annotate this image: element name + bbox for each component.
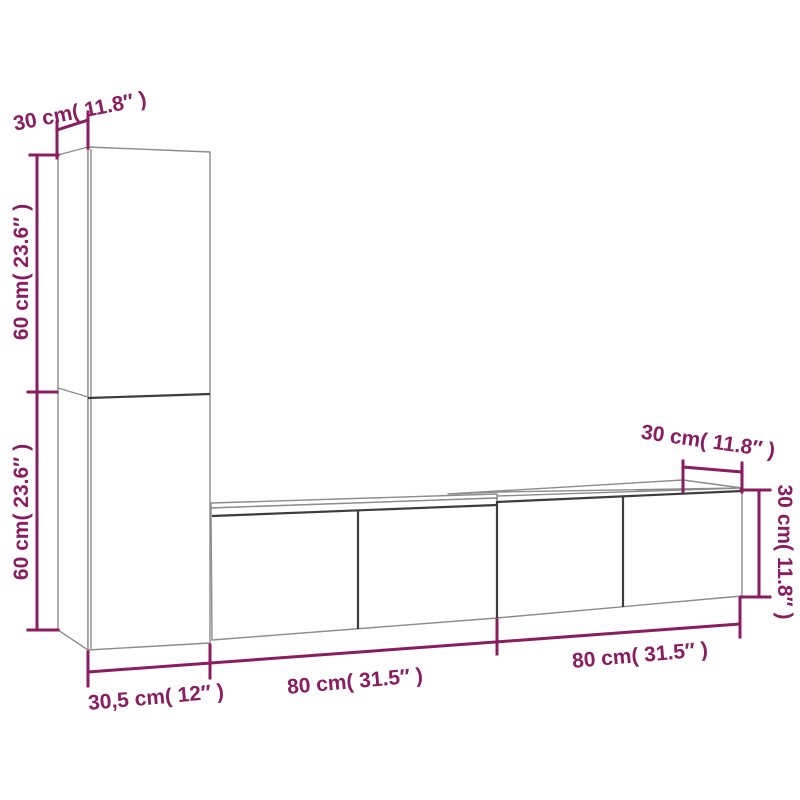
dim-label-lower-height: 60 cm( 23.6″ ) <box>10 444 34 580</box>
tall-cabinet <box>58 147 210 650</box>
tall-cabinet-side-face <box>58 147 88 650</box>
tv-unit-left-front-face <box>211 498 497 640</box>
tv-unit-left <box>211 494 497 640</box>
dim-label-right-height: 30 cm( 11.8″ ) <box>772 485 796 620</box>
dim-label-upper-height: 60 cm( 23.6″ ) <box>10 204 34 340</box>
dim-right-height <box>741 490 770 597</box>
tv-unit-right-front-face <box>497 488 742 618</box>
dimension-diagram: 30 cm( 11.8″ ) 60 cm( 23.6″ ) 60 cm( 23.… <box>0 0 800 800</box>
